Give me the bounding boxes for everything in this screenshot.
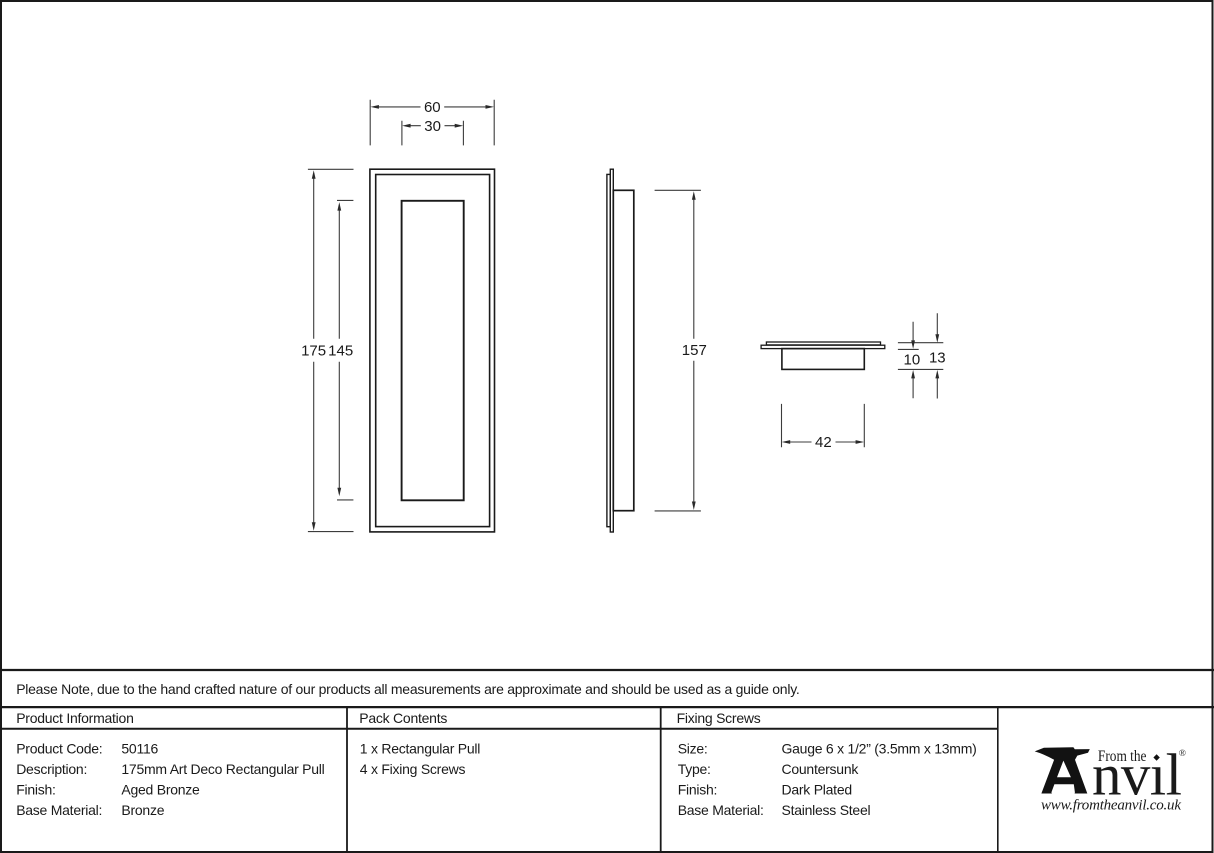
- svg-text:Pack Contents: Pack Contents: [359, 710, 447, 726]
- svg-text:Size:: Size:: [678, 741, 708, 757]
- svg-text:Please Note, due to the hand c: Please Note, due to the hand crafted nat…: [16, 681, 799, 697]
- svg-text:Finish:: Finish:: [678, 782, 717, 798]
- svg-text:157: 157: [682, 342, 707, 359]
- svg-text:13: 13: [929, 349, 946, 366]
- svg-text:Type:: Type:: [678, 761, 711, 777]
- svg-text:Dark Plated: Dark Plated: [782, 782, 852, 798]
- svg-text:145: 145: [328, 343, 353, 360]
- svg-text:Bronze: Bronze: [121, 802, 164, 818]
- svg-text:Gauge 6 x 1/2” (3.5mm x 13mm): Gauge 6 x 1/2” (3.5mm x 13mm): [782, 741, 977, 757]
- svg-text:Product Information: Product Information: [16, 710, 133, 726]
- svg-text:Base Material:: Base Material:: [678, 802, 764, 818]
- svg-text:30: 30: [424, 118, 441, 135]
- svg-text:Finish:: Finish:: [16, 782, 55, 798]
- svg-text:175: 175: [301, 343, 326, 360]
- svg-text:4 x Fixing Screws: 4 x Fixing Screws: [360, 761, 466, 777]
- svg-text:www.fromtheanvil.co.uk: www.fromtheanvil.co.uk: [1041, 798, 1181, 814]
- svg-text:Countersunk: Countersunk: [782, 761, 860, 777]
- svg-text:Description:: Description:: [16, 761, 87, 777]
- svg-text:From the: From the: [1098, 748, 1147, 765]
- svg-text:Fixing Screws: Fixing Screws: [677, 710, 761, 726]
- svg-text:175mm Art Deco Rectangular Pul: 175mm Art Deco Rectangular Pull: [121, 761, 324, 777]
- svg-text:Base Material:: Base Material:: [16, 802, 102, 818]
- svg-text:1 x Rectangular Pull: 1 x Rectangular Pull: [360, 741, 480, 757]
- svg-text:Aged Bronze: Aged Bronze: [121, 782, 200, 798]
- svg-text:Product Code:: Product Code:: [16, 741, 102, 757]
- svg-text:50116: 50116: [121, 741, 158, 757]
- svg-text:®: ®: [1179, 748, 1186, 759]
- svg-text:Stainless Steel: Stainless Steel: [782, 802, 871, 818]
- svg-text:10: 10: [904, 352, 921, 369]
- svg-text:42: 42: [815, 434, 832, 451]
- svg-text:60: 60: [424, 99, 441, 116]
